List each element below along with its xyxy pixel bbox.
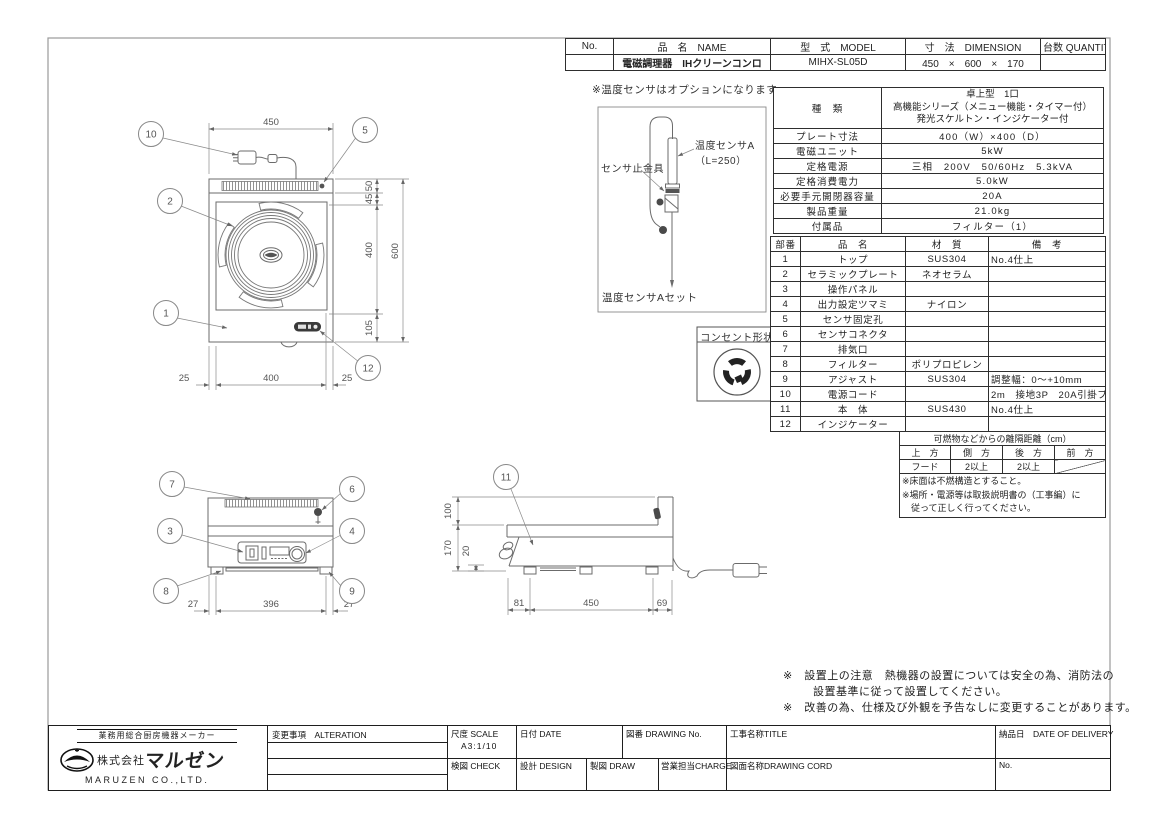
- clearance-note-2: ※場所・電源等は取扱説明書の（工事編）に: [902, 489, 1103, 503]
- parts-col-name: 品 名: [801, 237, 906, 252]
- part-note: 2m 接地3P 20A引掛プラグ付: [989, 387, 1106, 402]
- tb-divider: [447, 758, 1110, 759]
- spec-value: 5.0kW: [882, 174, 1104, 189]
- clearance-title: 可燃物などからの離隔距離（cm）: [900, 432, 1106, 446]
- parts-row: 10電源コード2m 接地3P 20A引掛プラグ付: [771, 387, 1106, 402]
- spec-row: 電磁ユニット5kW: [774, 144, 1104, 159]
- part-no: 4: [771, 297, 801, 312]
- spec-label: 製品重量: [774, 204, 882, 219]
- parts-row: 7排気口: [771, 342, 1106, 357]
- sensor-fixing-hole: [320, 184, 325, 189]
- cell-model: MIHX-SL05D: [771, 55, 906, 71]
- part-material: ナイロン: [906, 297, 989, 312]
- note-line-2: 設置基準に従って設置してください。: [783, 684, 1137, 700]
- plan-view: [208, 151, 334, 347]
- side-dim-450: 450: [583, 598, 599, 609]
- side-dim-170: 170: [443, 540, 454, 556]
- front-vents: [225, 500, 318, 508]
- part-name: センサ固定孔: [801, 312, 906, 327]
- part-no: 7: [771, 342, 801, 357]
- kind-line2: 高機能シリーズ（メニュー機能・タイマー付）: [884, 102, 1101, 115]
- clearance-title-row: 可燃物などからの離隔距離（cm）: [900, 432, 1106, 446]
- front-view: [208, 498, 333, 574]
- outlet-title: コンセント形状: [698, 329, 776, 344]
- tb-divider: [267, 758, 447, 759]
- balloon-1: 1: [163, 309, 169, 320]
- design-label: 設計 DESIGN: [520, 760, 572, 772]
- parts-col-material: 材 質: [906, 237, 989, 252]
- part-note: [989, 297, 1106, 312]
- drawing-cord-label: 図面名称DRAWING CORD: [730, 760, 832, 772]
- spec-value: 20A: [882, 189, 1104, 204]
- part-name: 操作パネル: [801, 282, 906, 297]
- tb-divider: [267, 742, 447, 743]
- clearance-col-front: 前 方: [1055, 446, 1106, 460]
- side-dim-100: 100: [443, 503, 454, 519]
- sensor-clamp-label: センサ止金具: [601, 160, 664, 175]
- plan-dim-400-bottom: 400: [263, 373, 279, 384]
- sensor-connector: [314, 508, 322, 524]
- part-name: 出力設定ツマミ: [801, 297, 906, 312]
- plan-dim-50: 50: [364, 181, 375, 192]
- part-note: [989, 327, 1106, 342]
- delivery-label: 納品日 DATE OF DELIVERY: [999, 728, 1113, 740]
- left-foot: [211, 567, 223, 574]
- part-no: 1: [771, 252, 801, 267]
- side-dim-20: 20: [461, 546, 472, 557]
- spec-value: フィルター（1）: [882, 219, 1104, 234]
- parts-col-note: 備 考: [989, 237, 1106, 252]
- side-balloon: 11: [494, 465, 534, 546]
- spec-label: 定格消費電力: [774, 174, 882, 189]
- plan-dim-600: 600: [390, 243, 401, 259]
- balloon-9: 9: [349, 587, 355, 598]
- side-dim-69: 69: [657, 598, 668, 609]
- outlet-slots: [720, 358, 753, 387]
- part-no: 10: [771, 387, 801, 402]
- col-dimension: 寸 法 DIMENSION: [906, 39, 1041, 55]
- cell-product-name: 電磁調理器 IHクリーンコンロ: [614, 55, 771, 71]
- part-name: センサコネクタ: [801, 327, 906, 342]
- part-name: 電源コード: [801, 387, 906, 402]
- part-note: [989, 342, 1106, 357]
- front-dim-396: 396: [263, 599, 279, 610]
- parts-row: 2セラミックプレートネオセラム: [771, 267, 1106, 282]
- part-no: 11: [771, 402, 801, 417]
- side-power-cord-plug: [673, 558, 767, 578]
- part-material: ポリプロピレン: [906, 357, 989, 372]
- spec-value: 5kW: [882, 144, 1104, 159]
- side-sensor-connector: [653, 507, 661, 519]
- part-note: 調整幅：0～+10mm: [989, 372, 1106, 387]
- maruzen-logo-icon: [59, 746, 95, 773]
- part-no: 8: [771, 357, 801, 372]
- cell-quantity: [1041, 55, 1106, 71]
- part-material: [906, 327, 989, 342]
- part-no: 3: [771, 282, 801, 297]
- part-name: 排気口: [801, 342, 906, 357]
- plan-dim-width: 450: [263, 117, 279, 128]
- spec-label: プレート寸法: [774, 129, 882, 144]
- scale-value: A3:1/10: [461, 741, 497, 751]
- spec-row: 付属品フィルター（1）: [774, 219, 1104, 234]
- company-logo-row: 株式会社 マルゼン: [59, 746, 225, 773]
- clearance-val-side: 2以上: [951, 460, 1003, 474]
- parts-row: 11本 体SUS430No.4仕上: [771, 402, 1106, 417]
- clearance-col-top: 上 方: [900, 446, 951, 460]
- parts-table: 部番 品 名 材 質 備 考 1トップSUS304No.4仕上 2セラミックプレ…: [770, 236, 1106, 432]
- spec-row: 定格消費電力5.0kW: [774, 174, 1104, 189]
- parts-row: 5センサ固定孔: [771, 312, 1106, 327]
- drawing-no-label: 図番 DRAWING No.: [626, 728, 702, 740]
- part-material: [906, 417, 989, 432]
- spec-row-kind: 種 類 卓上型 1口 高機能シリーズ（メニュー機能・タイマー付） 発光スケルトン…: [774, 88, 1104, 129]
- part-name: インジケーター: [801, 417, 906, 432]
- clearance-table: 可燃物などからの離隔距離（cm） 上 方 側 方 後 方 前 方 フード 2以上…: [899, 431, 1106, 518]
- part-note: No.4仕上: [989, 402, 1106, 417]
- company-tagline: 業務用総合厨房機器メーカー: [77, 729, 237, 743]
- spec-row: プレート寸法400（W）×400（D）: [774, 129, 1104, 144]
- part-name: セラミックプレート: [801, 267, 906, 282]
- tb-divider: [622, 726, 623, 758]
- drawing-sheet: { "colors": {"line": "#6b6b6b", "dim_tex…: [0, 0, 1157, 818]
- part-material: SUS430: [906, 402, 989, 417]
- part-note: [989, 267, 1106, 282]
- tb-divider: [658, 758, 659, 790]
- part-name: アジャスト: [801, 372, 906, 387]
- parts-col-no: 部番: [771, 237, 801, 252]
- spec-row: 製品重量21.0kg: [774, 204, 1104, 219]
- company-prefix: 株式会社: [97, 752, 145, 768]
- parts-row: 6センサコネクタ: [771, 327, 1106, 342]
- cord-outlet-arc: [281, 342, 297, 347]
- part-no: 12: [771, 417, 801, 432]
- installation-notes: ※ 設置上の注意 熱機器の設置については安全の為、消防法の 設置基準に従って設置…: [783, 668, 1137, 716]
- control-panel: [238, 542, 306, 563]
- spec-row: 必要手元開閉器容量20A: [774, 189, 1104, 204]
- cell-no: [566, 55, 614, 71]
- clearance-val-front: [1055, 460, 1106, 474]
- parts-row: 4出力設定ツマミナイロン: [771, 297, 1106, 312]
- scale-label: 尺度 SCALE: [451, 728, 498, 740]
- part-name: フィルター: [801, 357, 906, 372]
- header-table: No. 品 名 NAME 型 式 MODEL 寸 法 DIMENSION 台数 …: [565, 38, 1106, 71]
- part-material: [906, 282, 989, 297]
- spec-label: 電磁ユニット: [774, 144, 882, 159]
- front-dim-27-left: 27: [188, 599, 199, 610]
- side-view: [498, 497, 767, 578]
- kind-line1: 卓上型 1口: [884, 89, 1101, 102]
- balloon-4: 4: [349, 527, 355, 538]
- balloon-12: 12: [362, 364, 374, 375]
- part-material: [906, 387, 989, 402]
- balloon-5: 5: [362, 126, 368, 137]
- parts-row: 9アジャストSUS304調整幅：0～+10mm: [771, 372, 1106, 387]
- part-no: 5: [771, 312, 801, 327]
- balloon-10: 10: [145, 130, 157, 141]
- tb-divider: [586, 758, 587, 790]
- clearance-note-3: 従って正しく行ってください。: [902, 502, 1103, 516]
- part-note: [989, 417, 1106, 432]
- col-model: 型 式 MODEL: [771, 39, 906, 55]
- part-material: ネオセラム: [906, 267, 989, 282]
- title-label: 工事名称TITLE: [730, 728, 787, 740]
- clearance-notes-row: ※床面は不燃構造とすること。 ※場所・電源等は取扱説明書の（工事編）に 従って正…: [900, 474, 1106, 518]
- clearance-note-1: ※床面は不燃構造とすること。: [902, 475, 1103, 489]
- col-name: 品 名 NAME: [614, 39, 771, 55]
- alteration-label: 変更事項 ALTERATION: [272, 729, 367, 741]
- center-logo-mark: [260, 248, 282, 262]
- sensor-option-note: ※温度センサはオプションになります。: [592, 82, 787, 97]
- filter-bar: [226, 568, 318, 571]
- cell-dimension: 450 × 600 × 170: [906, 55, 1041, 71]
- plan-dim-25-left: 25: [179, 373, 190, 384]
- col-no: No.: [566, 39, 614, 55]
- company-name-en: MARUZEN CO.,LTD.: [85, 775, 209, 785]
- plan-dim-400: 400: [364, 242, 375, 258]
- part-no: 6: [771, 327, 801, 342]
- power-plug: [233, 151, 296, 179]
- header-table-row: 電磁調理器 IHクリーンコンロ MIHX-SL05D 450 × 600 × 1…: [566, 55, 1106, 71]
- spec-label: 必要手元開閉器容量: [774, 189, 882, 204]
- clearance-val-rear: 2以上: [1003, 460, 1055, 474]
- spec-label: 付属品: [774, 219, 882, 234]
- parts-row: 1トップSUS304No.4仕上: [771, 252, 1106, 267]
- note-line-1: ※ 設置上の注意 熱機器の設置については安全の為、消防法の: [783, 668, 1137, 684]
- plan-dim-25-right: 25: [342, 373, 353, 384]
- sensor-a-label: 温度センサA （L=250）: [695, 137, 755, 167]
- clearance-notes: ※床面は不燃構造とすること。 ※場所・電源等は取扱説明書の（工事編）に 従って正…: [900, 474, 1106, 518]
- sensor-probe-body: [668, 138, 677, 184]
- company-name: マルゼン: [144, 746, 227, 773]
- kind-line3: 発光スケルトン・インジケーター付: [884, 114, 1101, 127]
- part-note: No.4仕上: [989, 252, 1106, 267]
- side-dimensions: [452, 497, 672, 615]
- part-material: SUS304: [906, 372, 989, 387]
- header-table-head: No. 品 名 NAME 型 式 MODEL 寸 法 DIMENSION 台数 …: [566, 39, 1106, 55]
- title-block: 業務用総合厨房機器メーカー 株式会社 マルゼン MARUZEN CO.,LTD.…: [48, 725, 1111, 791]
- sensor-set-caption: 温度センサAセット: [602, 290, 698, 305]
- draw-label: 製図 DRAW: [590, 760, 635, 772]
- tb-divider: [267, 774, 447, 775]
- part-material: SUS304: [906, 252, 989, 267]
- balloon-6: 6: [349, 485, 355, 496]
- balloon-3: 3: [167, 527, 173, 538]
- part-name: トップ: [801, 252, 906, 267]
- spec-value: 21.0kg: [882, 204, 1104, 219]
- plan-dimension-texts: 450 50 45 400 105 600 25 400 25: [179, 117, 401, 384]
- exhaust-vents: [222, 182, 318, 191]
- spec-value: 400（W）×400（D）: [882, 129, 1104, 144]
- balloon-8: 8: [163, 587, 169, 598]
- part-note: [989, 312, 1106, 327]
- part-no: 9: [771, 372, 801, 387]
- part-material: [906, 342, 989, 357]
- clearance-value-row: フード 2以上 2以上: [900, 460, 1106, 474]
- parts-header: 部番 品 名 材 質 備 考: [771, 237, 1106, 252]
- clearance-col-rear: 後 方: [1003, 446, 1055, 460]
- note-line-3: ※ 改善の為、仕様及び外観を予告なしに変更することがあります。: [783, 700, 1137, 716]
- date-label: 日付 DATE: [520, 728, 561, 740]
- clearance-col-side: 側 方: [951, 446, 1003, 460]
- clearance-val-top: フード: [900, 460, 951, 474]
- sensor-a-label-line1: 温度センサA: [695, 137, 755, 152]
- col-quantity: 台数 QUANTITY: [1041, 39, 1106, 55]
- spec-label-kind: 種 類: [774, 88, 882, 129]
- side-dim-81: 81: [514, 598, 525, 609]
- balloon-11: 11: [501, 473, 512, 484]
- plan-dimensions: [196, 123, 409, 390]
- spec-table: 種 類 卓上型 1口 高機能シリーズ（メニュー機能・タイマー付） 発光スケルトン…: [773, 87, 1104, 234]
- clearance-header-row: 上 方 側 方 後 方 前 方: [900, 446, 1106, 460]
- part-no: 2: [771, 267, 801, 282]
- parts-row: 3操作パネル: [771, 282, 1106, 297]
- spec-value-kind: 卓上型 1口 高機能シリーズ（メニュー機能・タイマー付） 発光スケルトン・インジ…: [882, 88, 1104, 129]
- plan-dim-105: 105: [364, 320, 375, 336]
- part-note: [989, 282, 1106, 297]
- balloon-7: 7: [169, 480, 175, 491]
- balloon-2: 2: [167, 197, 173, 208]
- spec-value: 三相 200V 50/60Hz 5.3kVA: [882, 159, 1104, 174]
- plan-dim-45: 45: [364, 194, 375, 205]
- part-name: 本 体: [801, 402, 906, 417]
- spec-label: 定格電源: [774, 159, 882, 174]
- sensor-a-label-line2: （L=250）: [695, 152, 755, 167]
- part-note: [989, 357, 1106, 372]
- indicator: [294, 322, 321, 332]
- part-material: [906, 312, 989, 327]
- parts-row: 8フィルターポリプロピレン: [771, 357, 1106, 372]
- front-dimension-texts: 27 396 27: [188, 599, 355, 610]
- no-label: No.: [999, 760, 1012, 770]
- side-dimension-texts: 100 170 20 81 450 69: [443, 503, 667, 609]
- check-label: 検図 CHECK: [451, 760, 500, 772]
- parts-row: 12インジケーター: [771, 417, 1106, 432]
- spec-row: 定格電源三相 200V 50/60Hz 5.3kVA: [774, 159, 1104, 174]
- charge-label: 営業担当CHARGE: [661, 760, 731, 772]
